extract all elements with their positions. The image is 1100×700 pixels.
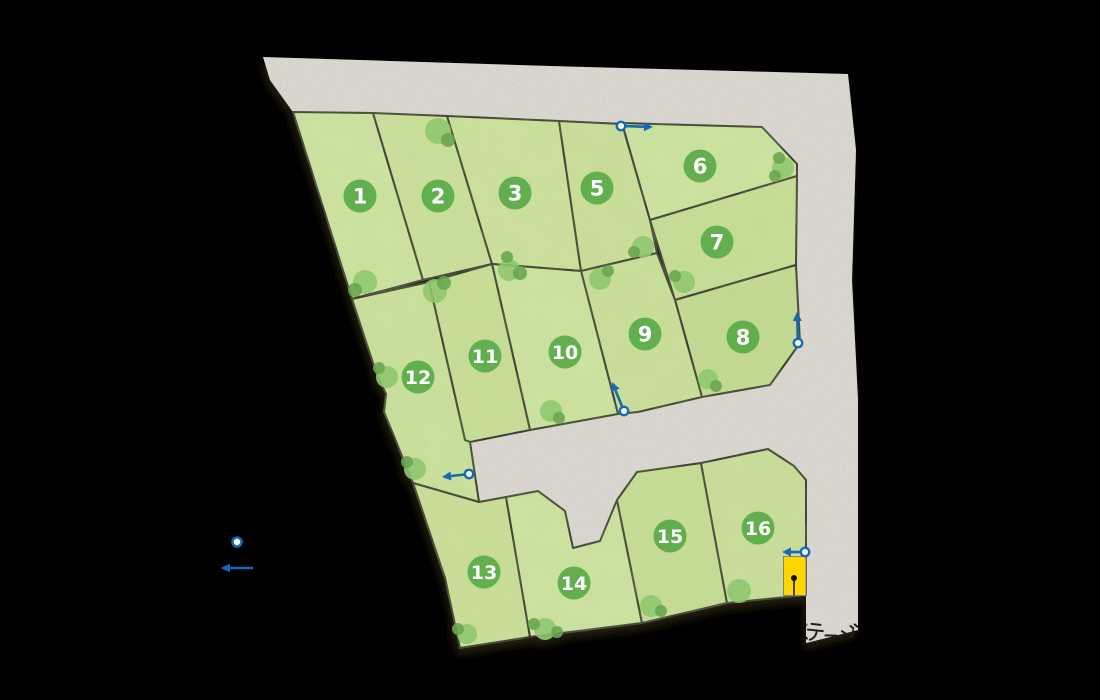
lot-badge-14[interactable]: 14 xyxy=(558,567,591,600)
lot-number-14: 14 xyxy=(561,573,587,595)
lot-number-7: 7 xyxy=(710,231,725,255)
arrow-origin-dot xyxy=(794,339,802,347)
lot-badge-12[interactable]: 12 xyxy=(402,361,435,394)
tree-icon xyxy=(513,266,527,280)
marker-pin-icon xyxy=(791,575,797,581)
lot-number-5: 5 xyxy=(590,177,605,201)
lot-badge-7[interactable]: 7 xyxy=(701,226,734,259)
tree-icon xyxy=(602,265,614,277)
lot-badge-16[interactable]: 16 xyxy=(742,512,775,545)
lot-badge-9[interactable]: 9 xyxy=(629,318,662,351)
tree-icon xyxy=(769,170,781,182)
tree-icon xyxy=(441,133,455,147)
tree-icon xyxy=(401,456,413,468)
lot-badge-5[interactable]: 5 xyxy=(581,172,614,205)
lot-number-15: 15 xyxy=(657,526,683,548)
legend xyxy=(221,538,253,573)
tree-icon xyxy=(628,246,640,258)
lot-number-16: 16 xyxy=(745,518,771,540)
lot-number-11: 11 xyxy=(472,346,498,368)
map-group: 1235678910111213141516 xyxy=(263,57,858,648)
lot-badge-10[interactable]: 10 xyxy=(549,336,582,369)
lot-number-9: 9 xyxy=(638,323,653,347)
legend-dot-icon xyxy=(233,538,242,547)
lot-badge-3[interactable]: 3 xyxy=(499,177,532,210)
lot-number-13: 13 xyxy=(471,562,497,584)
tree-icon xyxy=(773,152,785,164)
tree-icon xyxy=(373,362,385,374)
tree-icon xyxy=(553,412,565,424)
tree-icon xyxy=(551,626,563,638)
lot-badge-13[interactable]: 13 xyxy=(468,556,501,589)
lot-map-svg: 1235678910111213141516 xyxy=(0,0,1100,700)
tree-icon xyxy=(452,623,464,635)
lot-number-1: 1 xyxy=(353,185,368,209)
tree-icon xyxy=(437,276,451,290)
lot-badge-11[interactable]: 11 xyxy=(469,340,502,373)
lot-badge-2[interactable]: 2 xyxy=(422,180,455,213)
position-marker[interactable] xyxy=(784,557,807,596)
lot-badge-6[interactable]: 6 xyxy=(684,150,717,183)
arrow-origin-dot xyxy=(465,470,473,478)
lot-number-8: 8 xyxy=(736,326,751,350)
tree-icon xyxy=(727,579,751,603)
tree-icon xyxy=(528,618,540,630)
lot-badge-15[interactable]: 15 xyxy=(654,520,687,553)
tree-icon xyxy=(669,270,681,282)
site-plan-canvas: ステージ 1235678910111213141516 xyxy=(0,0,1100,700)
arrow-origin-dot xyxy=(801,548,809,556)
tree-icon xyxy=(655,605,667,617)
lot-badge-1[interactable]: 1 xyxy=(344,180,377,213)
lot-number-10: 10 xyxy=(552,342,578,364)
tree-icon xyxy=(710,380,722,392)
arrow-origin-dot xyxy=(620,407,628,415)
tree-icon xyxy=(348,283,362,297)
lot-number-2: 2 xyxy=(431,185,446,209)
lot-number-6: 6 xyxy=(693,155,708,179)
lot-badge-8[interactable]: 8 xyxy=(727,321,760,354)
tree-icon xyxy=(501,251,513,263)
lot-number-12: 12 xyxy=(405,367,431,389)
lot-number-3: 3 xyxy=(508,182,523,206)
arrow-origin-dot xyxy=(617,122,625,130)
legend-arrow-icon xyxy=(221,564,253,573)
